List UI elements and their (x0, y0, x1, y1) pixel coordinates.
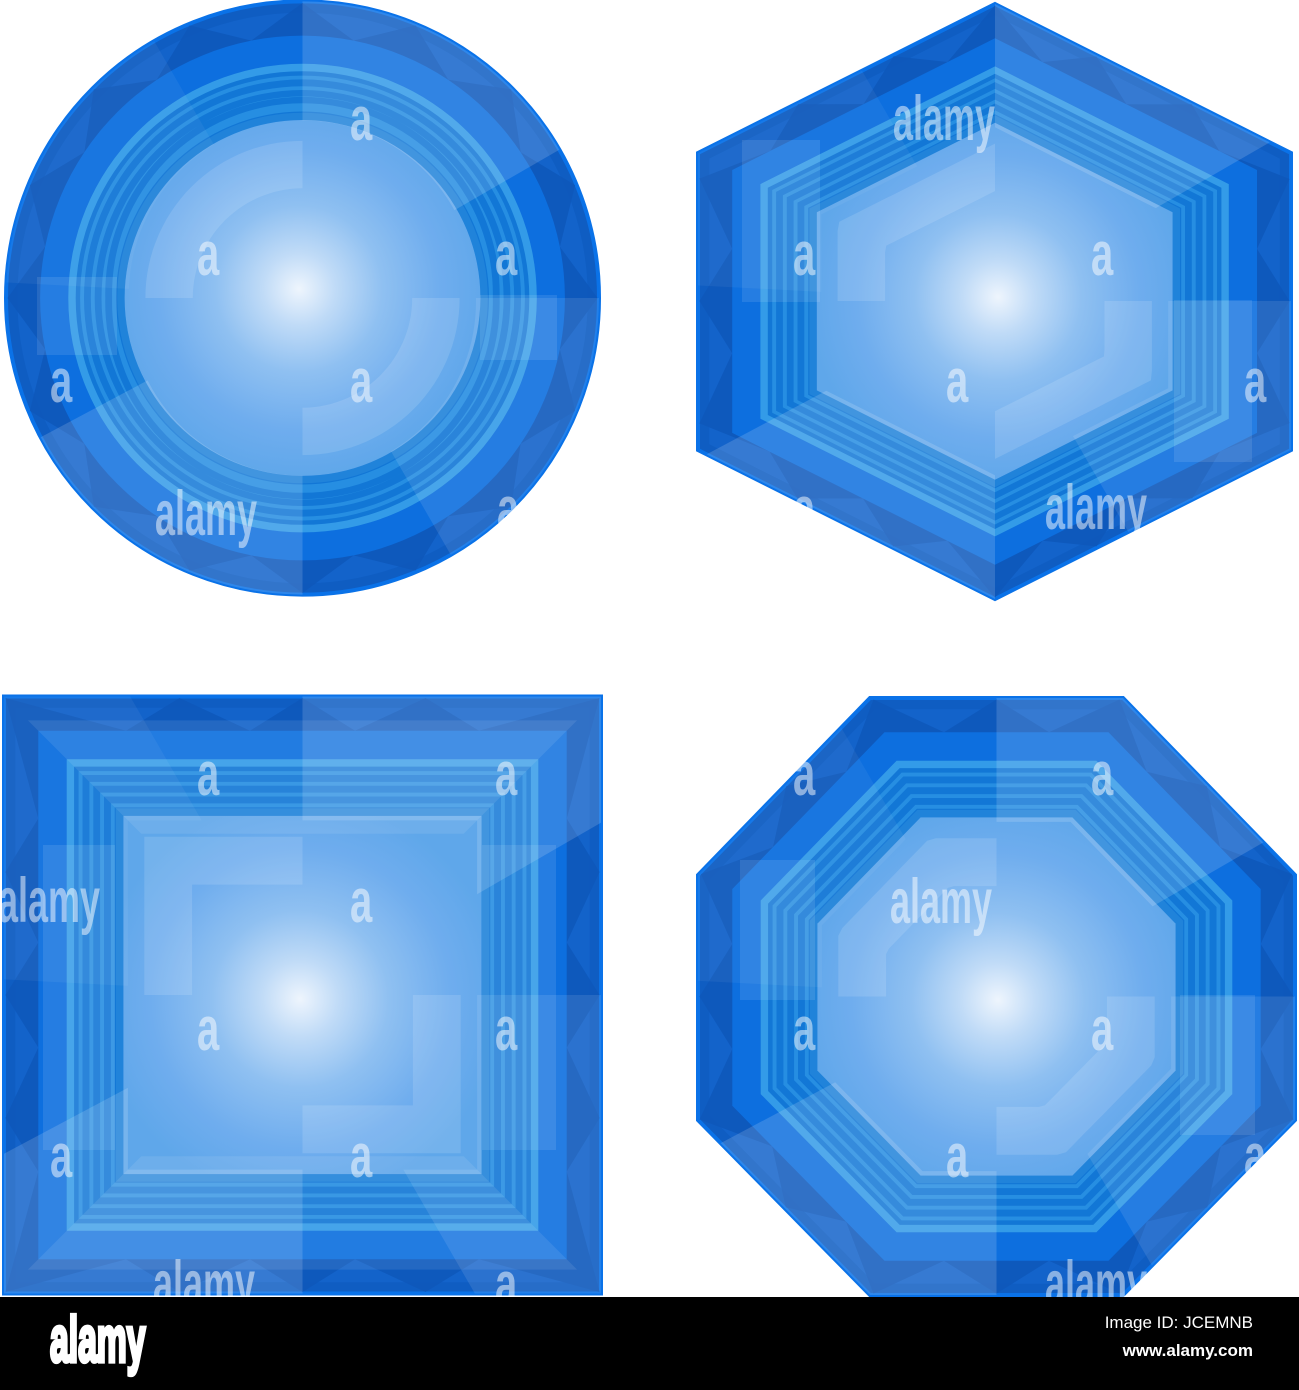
svg-text:a: a (350, 85, 373, 154)
svg-text:a: a (793, 475, 816, 544)
svg-text:a: a (648, 867, 671, 936)
svg-text:a: a (50, 347, 73, 416)
svg-text:a: a (648, 603, 671, 672)
svg-text:a: a (648, 1122, 671, 1191)
svg-text:a: a (946, 1122, 969, 1191)
svg-text:a: a (946, 603, 969, 672)
svg-text:alamy: alamy (155, 479, 257, 549)
svg-text:a: a (946, 347, 969, 416)
svg-text:a: a (197, 220, 220, 289)
svg-text:a: a (350, 347, 373, 416)
svg-text:a: a (497, 475, 520, 544)
svg-text:a: a (495, 220, 518, 289)
svg-text:alamy: alamy (1045, 473, 1147, 543)
svg-text:a: a (648, 347, 671, 416)
svg-text:a: a (350, 867, 373, 936)
svg-text:a: a (793, 220, 816, 289)
svg-text:a: a (197, 740, 220, 809)
svg-text:alamy: alamy (0, 866, 100, 936)
svg-text:a: a (1091, 740, 1114, 809)
svg-text:a: a (793, 740, 816, 809)
svg-text:a: a (350, 1122, 373, 1191)
svg-text:a: a (197, 995, 220, 1064)
svg-text:a: a (1244, 1122, 1267, 1191)
svg-text:a: a (1091, 995, 1114, 1064)
svg-text:alamy: alamy (893, 84, 995, 154)
svg-text:a: a (1244, 347, 1267, 416)
svg-text:a: a (50, 1122, 73, 1191)
svg-text:a: a (495, 740, 518, 809)
svg-text:a: a (350, 603, 373, 672)
svg-text:a: a (793, 995, 816, 1064)
svg-text:a: a (495, 995, 518, 1064)
svg-text:a: a (1091, 220, 1114, 289)
svg-text:alamy: alamy (890, 867, 992, 937)
